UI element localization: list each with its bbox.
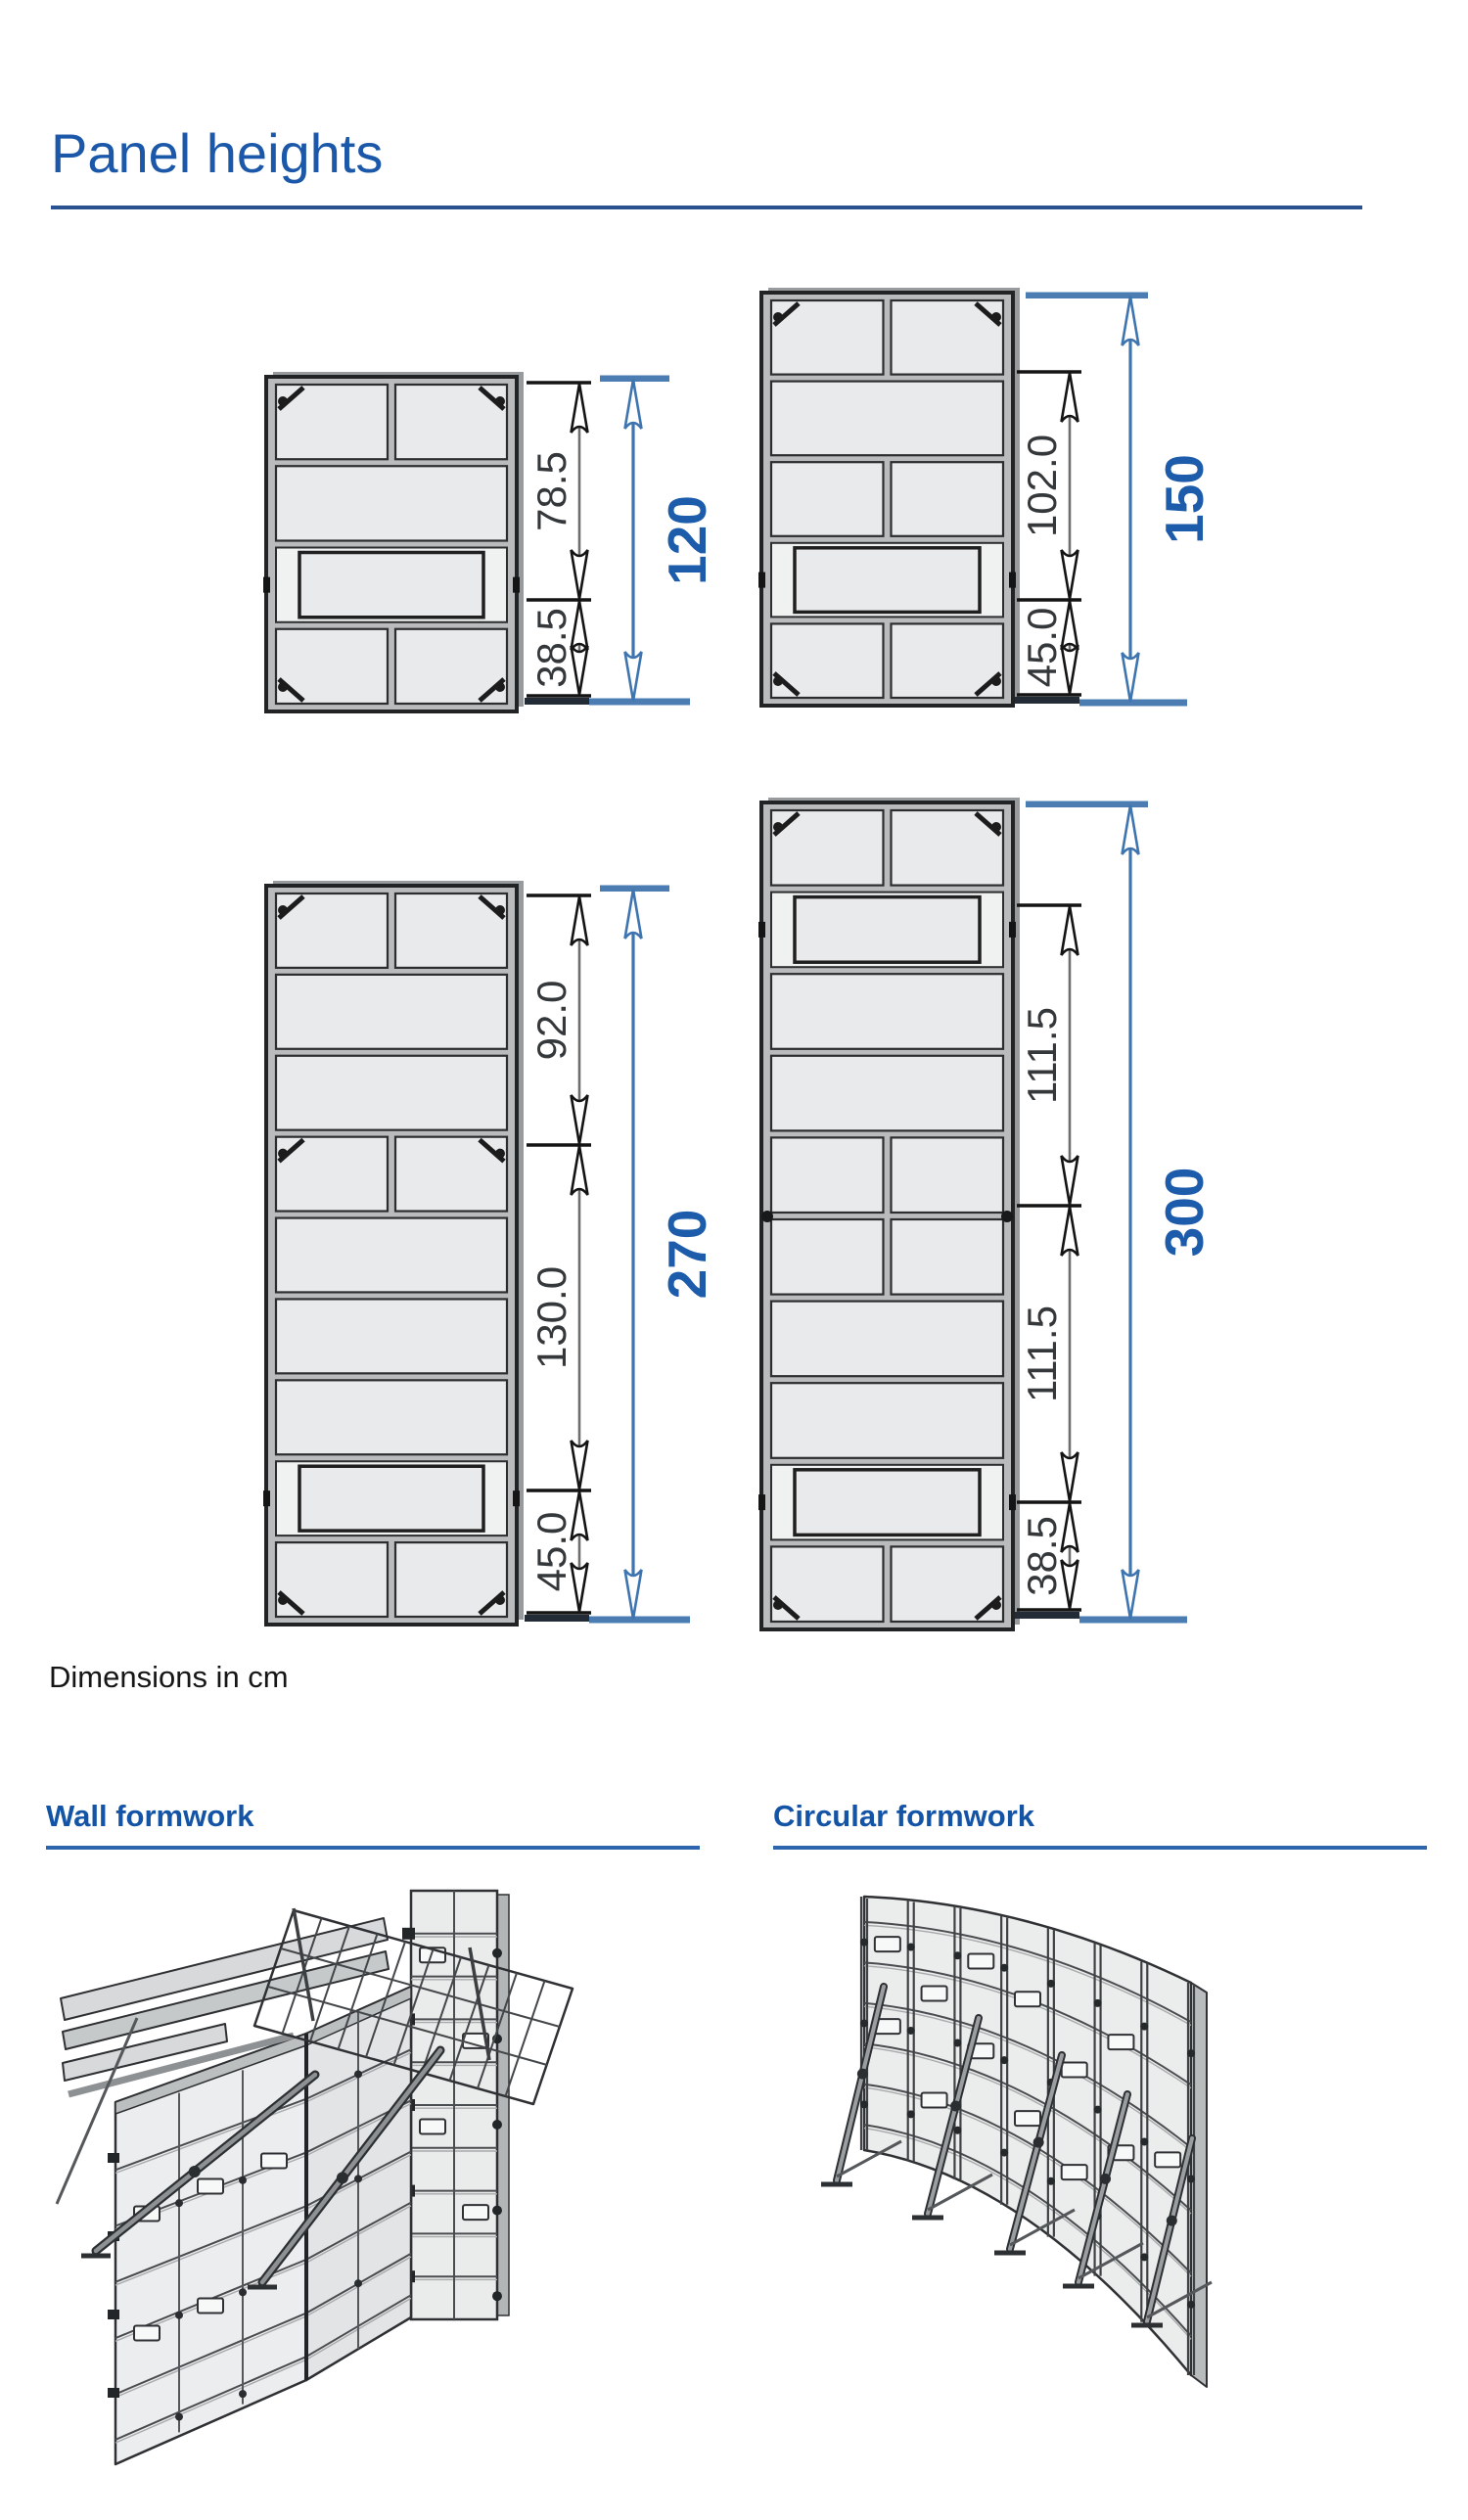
overall-height-label: 270 (657, 1210, 717, 1300)
segment-dimension-label: 130.0 (528, 1266, 574, 1369)
segment-dimension-label: 111.5 (1019, 1306, 1065, 1402)
overall-height-label: 150 (1154, 454, 1215, 544)
section-title-wall-formwork: Wall formwork (46, 1799, 253, 1834)
overall-dimension: 120 (589, 376, 717, 706)
segment-dimension-label: 45.0 (1019, 608, 1065, 688)
wall-formwork-illustration (57, 1891, 573, 2464)
formwork-diagrams: 78.538.5120102.045.015092.0130.045.02701… (0, 0, 1468, 2520)
section-title-circular-formwork: Circular formwork (773, 1799, 1034, 1834)
dimension-chain: 102.045.0 (1015, 372, 1081, 704)
panel-height-270: 92.0130.045.0270 (263, 881, 717, 1625)
panel-height-300: 111.5111.538.5300 (758, 798, 1215, 1629)
segment-dimension-label: 78.5 (528, 451, 574, 531)
section-rule-wall (46, 1846, 700, 1850)
section-rule-circular (773, 1846, 1427, 1850)
overall-height-label: 120 (657, 495, 717, 585)
dimension-chain: 92.0130.045.0 (525, 895, 591, 1622)
overall-dimension: 270 (589, 886, 717, 1624)
formwork-wall-left-wing (108, 2034, 306, 2464)
segment-dimension-label: 38.5 (528, 608, 574, 688)
segment-dimension-label: 45.0 (528, 1512, 574, 1592)
title-rule (51, 206, 1362, 209)
dimensions-note: Dimensions in cm (49, 1660, 289, 1695)
panel-height-120: 78.538.5120 (263, 372, 717, 711)
segment-dimension-label: 38.5 (1019, 1516, 1065, 1596)
panel-height-150: 102.045.0150 (758, 288, 1215, 707)
segment-dimension-label: 111.5 (1019, 1007, 1065, 1104)
dimension-chain: 111.5111.538.5 (1015, 905, 1081, 1619)
page: { "page": { "title": "Panel heights", "n… (0, 0, 1468, 2520)
overall-dimension: 300 (1026, 802, 1215, 1624)
dimension-chain: 78.538.5 (525, 383, 591, 705)
segment-dimension-label: 102.0 (1019, 435, 1065, 537)
overall-height-label: 300 (1154, 1168, 1215, 1258)
circular-formwork-illustration (821, 1897, 1212, 2387)
page-title: Panel heights (51, 121, 383, 185)
segment-dimension-label: 92.0 (528, 981, 574, 1061)
